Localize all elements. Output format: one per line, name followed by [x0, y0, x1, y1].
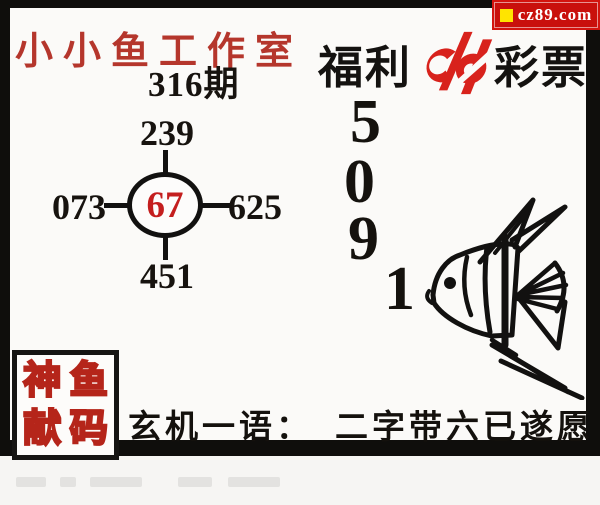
seal-char-4: 码 [70, 410, 108, 448]
vertical-digit-3: 9 [348, 208, 379, 270]
seal-char-1: 神 [23, 362, 61, 400]
watermark-blob [228, 477, 280, 487]
watermark-blob [178, 477, 212, 487]
hub-number-right: 625 [228, 189, 308, 225]
issue-number: 316期 [148, 56, 240, 107]
mystery-line: 玄机一语： 二字带六已遂愿 [128, 400, 594, 448]
yellow-square-icon [500, 9, 513, 22]
hub-number-top: 239 [127, 115, 207, 151]
seal-char-2: 鱼 [70, 362, 108, 400]
hub-connector-right [201, 203, 230, 208]
vertical-digit-1: 5 [350, 91, 381, 153]
vertical-digit-4: 1 [384, 258, 415, 320]
hub-number-left: 073 [36, 189, 106, 225]
site-badge-label: cz89.com [518, 5, 593, 25]
site-badge[interactable]: cz89.com [492, 0, 600, 30]
hub-center-number: 67 [147, 187, 184, 224]
brand-row: 福利 彩票 [318, 30, 588, 96]
watermark-blob [16, 477, 46, 487]
hub-connector-top [163, 150, 168, 174]
mystery-phrase: 二字带六已遂愿 [335, 400, 594, 448]
watermark-blob [60, 477, 76, 487]
brand-right-text: 彩票 [494, 31, 588, 96]
lottery-tip-poster: cz89.com 小小鱼工作室 316期 福利 彩票 239 073 625 4… [0, 0, 600, 505]
watermark-blob [90, 477, 142, 487]
seal-stamp: 神 鱼 献 码 [12, 350, 119, 460]
hub-number-bottom: 451 [127, 258, 207, 294]
brand-left-text: 福利 [318, 31, 412, 96]
welfare-lottery-logo-icon [413, 30, 493, 96]
angelfish-icon [415, 185, 600, 400]
hub-connector-left [104, 203, 129, 208]
vertical-digit-2: 0 [344, 151, 375, 213]
bottom-strip [0, 456, 600, 505]
mystery-label: 玄机一语： [128, 400, 313, 448]
seal-char-3: 献 [23, 410, 61, 448]
hub-circle: 67 [127, 172, 203, 238]
